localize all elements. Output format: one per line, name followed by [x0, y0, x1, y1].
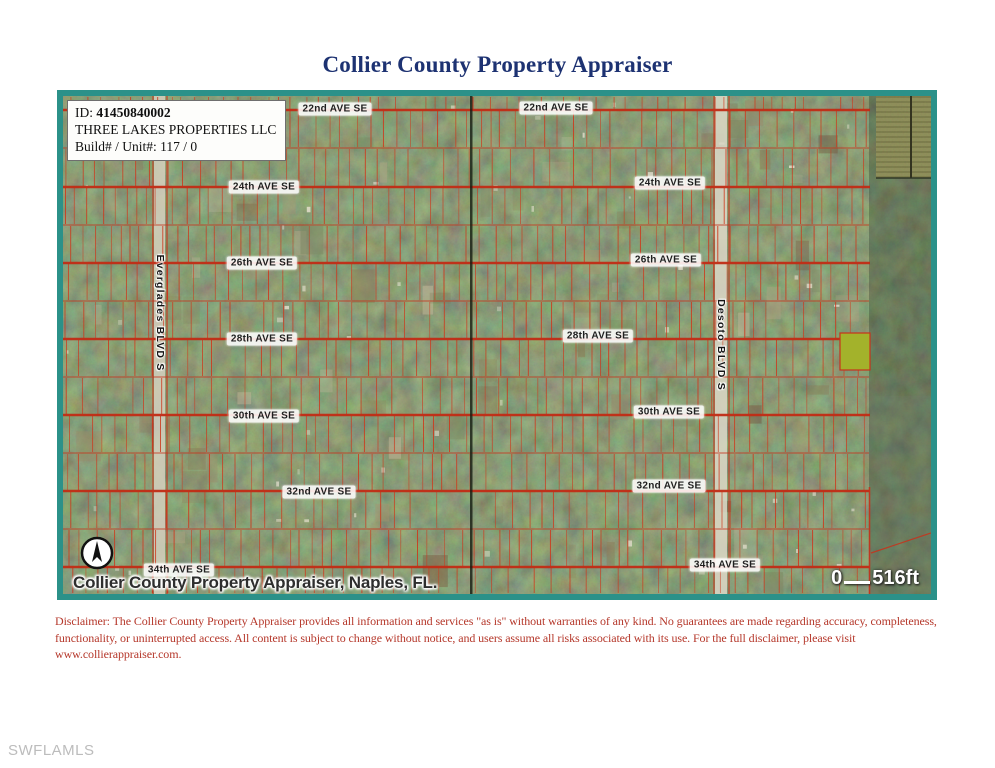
photo-seam-divider [470, 96, 473, 594]
street-label-30th-ave-se: 30th AVE SE [634, 406, 704, 419]
street-label-22nd-ave-se: 22nd AVE SE [299, 103, 372, 116]
scale-bar-line [844, 581, 870, 584]
subject-parcel-highlight [840, 333, 870, 370]
street-label-24th-ave-se: 24th AVE SE [635, 177, 705, 190]
watermark: SWFLAMLS [8, 742, 95, 759]
street-label-32nd-ave-se: 32nd AVE SE [283, 486, 356, 499]
parcel-owner: THREE LAKES PROPERTIES LLC [75, 121, 276, 138]
map-frame: ID: 41450840002 THREE LAKES PROPERTIES L… [57, 90, 937, 600]
map-caption: Collier County Property Appraiser, Naple… [73, 573, 437, 593]
street-label-32nd-ave-se: 32nd AVE SE [633, 480, 706, 493]
wetland-tint [869, 396, 931, 594]
street-label-24th-ave-se: 24th AVE SE [229, 181, 299, 194]
street-label-22nd-ave-se: 22nd AVE SE [520, 102, 593, 115]
parcel-id-line: ID: 41450840002 [75, 104, 276, 121]
parcel-info-box: ID: 41450840002 THREE LAKES PROPERTIES L… [67, 100, 286, 161]
scale-bar: 0 516ft [831, 567, 919, 590]
scale-distance: 516ft [872, 567, 919, 590]
street-label-28th-ave-se: 28th AVE SE [563, 330, 633, 343]
street-label-26th-ave-se: 26th AVE SE [631, 254, 701, 267]
street-label-34th-ave-se: 34th AVE SE [690, 559, 760, 572]
road-label-desoto-blvd-s: Desoto BLVD S [715, 299, 727, 391]
parcel-id-value: 41450840002 [96, 105, 170, 120]
disclaimer-text: Disclaimer: The Collier County Property … [55, 613, 937, 663]
farmland-grain [876, 96, 931, 178]
street-label-26th-ave-se: 26th AVE SE [227, 257, 297, 270]
road-label-everglades-blvd-s: Everglades BLVD S [154, 254, 166, 371]
page-title: Collier County Property Appraiser [0, 52, 995, 78]
aerial-map-svg [63, 96, 931, 594]
parcel-build-unit: Build# / Unit#: 117 / 0 [75, 138, 276, 155]
street-label-28th-ave-se: 28th AVE SE [227, 333, 297, 346]
street-label-30th-ave-se: 30th AVE SE [229, 410, 299, 423]
scale-zero: 0 [831, 567, 842, 590]
aerial-map: ID: 41450840002 THREE LAKES PROPERTIES L… [63, 96, 931, 594]
north-arrow-icon [80, 536, 114, 570]
